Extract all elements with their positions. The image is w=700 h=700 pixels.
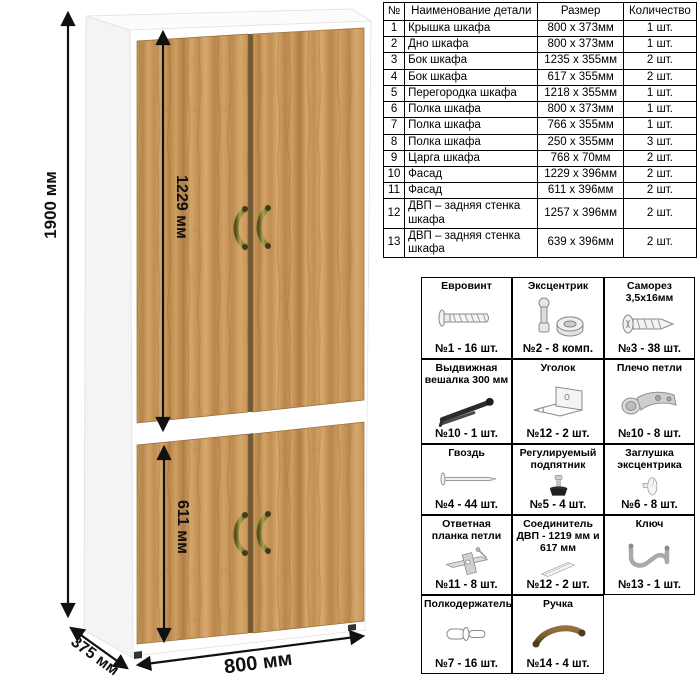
- hardware-item-samorez: Саморез 3,5х16мм №3 - 38 шт.: [604, 277, 695, 359]
- door-upper-right: [253, 28, 364, 412]
- hardware-item-otvetnaya-planka: Ответная планка петли №11 - 8 шт.: [421, 515, 512, 595]
- table-row: 13ДВП – задняя стенка шкафа639 х 396мм2 …: [384, 228, 697, 257]
- hardware-empty-cell: [604, 595, 695, 674]
- col-header-qty: Количество: [623, 3, 696, 21]
- parts-table: № Наименование детали Размер Количество …: [383, 2, 697, 258]
- hardware-item-excentrik: Эксцентрик №2 - 8 комп.: [512, 277, 604, 359]
- hardware-item-eurovint: Евровинт №1 - 16 шт.: [421, 277, 512, 359]
- hardware-item-ugolok: Уголок №12 - 2 шт.: [512, 359, 604, 444]
- hdf-connector-icon: [513, 554, 603, 579]
- table-row: 12ДВП – задняя стенка шкафа1257 х 396мм2…: [384, 199, 697, 228]
- table-row: 11Фасад611 х 396мм2 шт.: [384, 183, 697, 199]
- table-row: 4Бок шкафа617 х 355мм2 шт.: [384, 69, 697, 85]
- table-row: 10Фасад1229 х 396мм2 шт.: [384, 166, 697, 182]
- hinge-plate-icon: [422, 543, 511, 580]
- hardware-grid: Евровинт №1 - 16 шт. Эксцентрик №2 - 8 к…: [421, 277, 695, 674]
- cam-cover-icon: [605, 472, 694, 500]
- corner-bracket-icon: [513, 375, 603, 428]
- door-lower-left: [137, 434, 248, 644]
- table-row: 2Дно шкафа800 х 373мм1 шт.: [384, 37, 697, 53]
- table-row: 5Перегородка шкафа1218 х 355мм1 шт.: [384, 85, 697, 101]
- table-row: 7Полка шкафа766 х 355мм1 шт.: [384, 118, 697, 134]
- col-header-num: №: [384, 3, 405, 21]
- parts-table-header: № Наименование детали Размер Количество: [384, 3, 697, 21]
- table-row: 9Царга шкафа768 х 70мм2 шт.: [384, 150, 697, 166]
- table-row: 1Крышка шкафа800 х 373мм1 шт.: [384, 21, 697, 37]
- cabinet-foot-left: [134, 651, 142, 659]
- wardrobe-drawing: 1900 мм 1229 мм 611 мм 800 мм 375 мм: [0, 0, 400, 700]
- hardware-item-gvozd: Гвоздь №4 - 44 шт.: [421, 444, 512, 515]
- door-seam-lower: [248, 433, 253, 633]
- table-row: 6Полка шкафа800 х 373мм1 шт.: [384, 102, 697, 118]
- table-row: 8Полка шкафа250 х 355мм3 шт.: [384, 134, 697, 150]
- door-lower-right: [253, 422, 364, 633]
- hex-key-icon: [605, 531, 694, 579]
- dimension-height-label: 1900 мм: [41, 171, 60, 239]
- cabinet-side-panel: [84, 16, 133, 658]
- hardware-item-ruchka: Ручка №14 - 4 шт.: [512, 595, 604, 674]
- hardware-item-zaglushka: Заглушка эксцентрика №6 - 8 шт.: [604, 444, 695, 515]
- self-tapping-screw-icon: [605, 305, 694, 344]
- table-row: 3Бок шкафа1235 х 355мм2 шт.: [384, 53, 697, 69]
- nail-icon: [422, 460, 511, 499]
- dimension-lower-door-label: 611 мм: [174, 500, 191, 554]
- shelf-pin-icon: [422, 611, 511, 658]
- confirmat-screw-icon: [422, 293, 511, 343]
- handle-icon: [513, 611, 603, 658]
- door-seam-upper: [248, 34, 253, 412]
- hardware-item-klyuch: Ключ №13 - 1 шт.: [604, 515, 695, 595]
- cabinet-foot-right: [348, 624, 356, 631]
- door-upper-left: [137, 34, 248, 423]
- pullout-hanger-icon: [422, 387, 511, 429]
- dimension-upper-door-label: 1229 мм: [173, 175, 190, 239]
- adjustable-foot-icon: [513, 472, 603, 500]
- col-header-size: Размер: [538, 3, 623, 21]
- hinge-arm-icon: [605, 375, 694, 428]
- hardware-item-podpyatnik: Регулируемый подпятник №5 - 4 шт.: [512, 444, 604, 515]
- cam-lock-icon: [513, 293, 603, 343]
- hardware-item-plecho-petli: Плечо петли №10 - 8 шт.: [604, 359, 695, 444]
- hardware-item-soedinitel: Соединитель ДВП - 1219 мм и 617 мм №12 -…: [512, 515, 604, 595]
- hardware-item-veshalka: Выдвижная вешалка 300 мм №10 - 1 шт.: [421, 359, 512, 444]
- hardware-item-polkoderzhatel: Полкодержатель №7 - 16 шт.: [421, 595, 512, 674]
- col-header-name: Наименование детали: [405, 3, 538, 21]
